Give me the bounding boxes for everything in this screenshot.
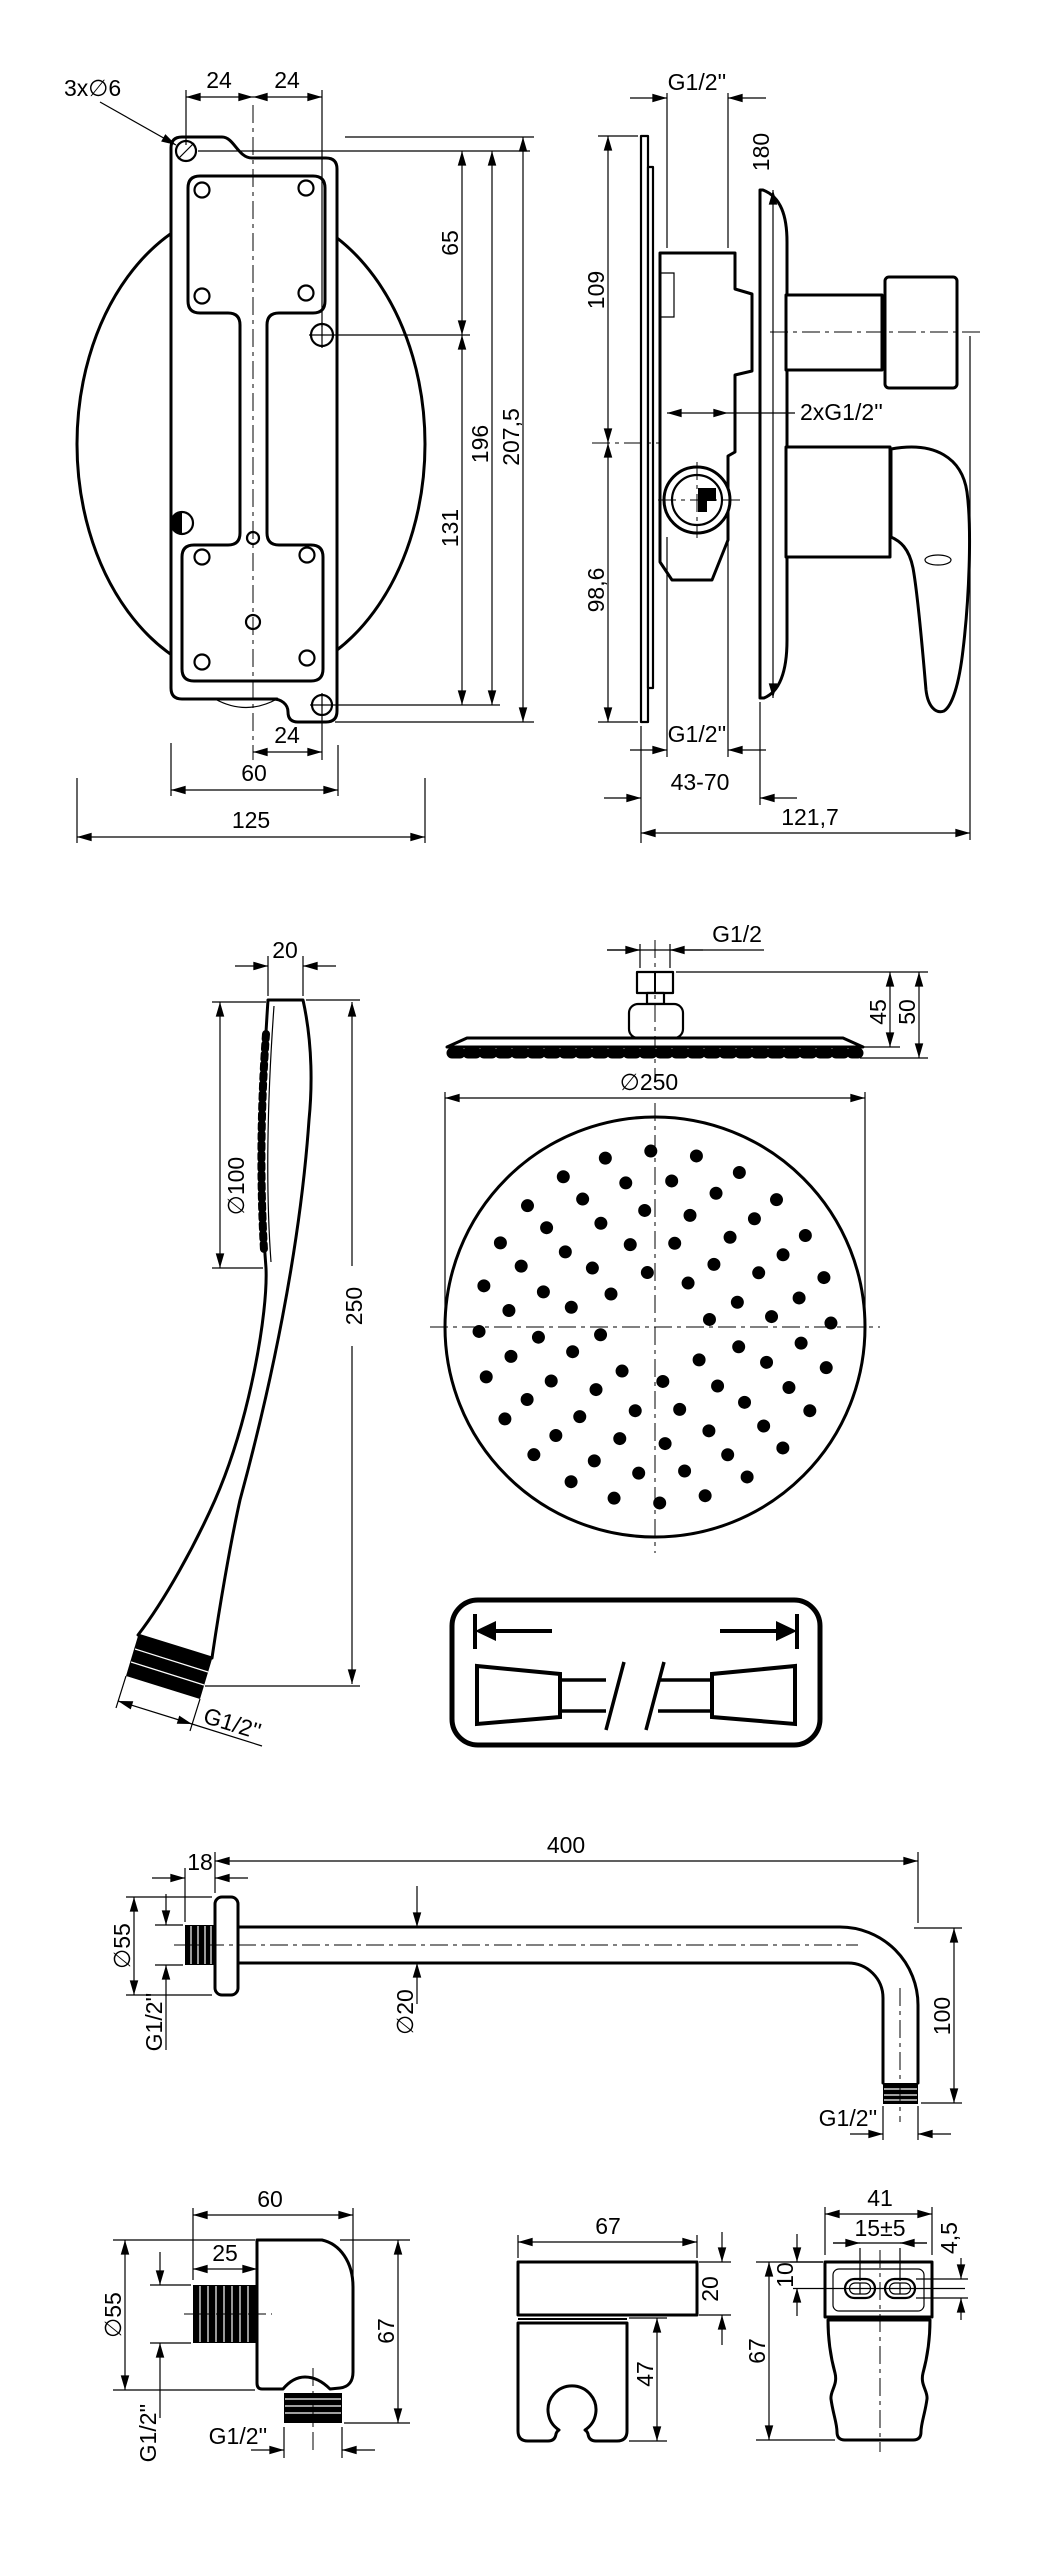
dim-label-outlet-flange-dia: ∅55 [100,2292,126,2338]
dim-label-back-width: 41 [867,2185,893,2211]
view-holder-side: 67 20 47 [518,2213,731,2441]
dim-label-wall-thread-length: 18 [187,1849,213,1875]
dim-label-top-thread: G1/2'' [668,69,727,95]
dim-label-length: 250 [341,1287,367,1325]
mixer-lower-sleeve [786,447,890,557]
dim-label-arm-length: 400 [547,1832,585,1858]
dim-label-hole-lower: 131 [437,509,463,547]
dim-label-end-thread: G1/2'' [819,2105,878,2131]
dim-label-total-depth: 121,7 [781,804,839,830]
dim-label-slot-height: 4,5 [936,2222,962,2254]
dim-label-head-thickness: 20 [272,937,298,963]
dim-label-slot-spacing: 15±5 [855,2215,906,2241]
dim-label-lower-height: 98,6 [583,568,609,613]
mixer-wall-plate-2 [648,167,653,688]
dim-label-wall-thread: G1/2'' [141,1993,167,2052]
view-wall-outlet: 60 25 ∅55 67 G1/2'' G1/2'' [100,2186,410,2462]
dim-label-height-total: 50 [894,999,920,1025]
arm-pipe-outer [238,1927,918,2083]
dim-label-holder-plate-thickness: 20 [697,2276,723,2302]
technical-drawing-sheet: 24 24 3x∅6 65 131 196 207,5 24 60 125 [0,0,1056,2560]
dim-label-pitch-right: 24 [274,67,300,93]
view-head-side: G1/2 45 50 [447,921,928,1078]
view-mounting-plate: 24 24 3x∅6 65 131 196 207,5 24 60 125 [64,67,534,843]
hand-shower-outline [138,1000,311,1658]
dim-label-holes: 3x∅6 [64,75,121,101]
dim-label-head-thread: G1/2 [712,921,762,947]
holder-fork [518,2323,627,2441]
dim-label-height-to-plate: 45 [865,999,891,1025]
dim-label-plate-width: 60 [241,760,267,786]
view-mixer-valve: G1/2'' 180 109 98,6 2xG1/2'' G1/2'' 43-7… [583,69,985,843]
dim-label-hole-upper: 65 [437,230,463,256]
dim-label-outlet-bottom-thread: G1/2'' [209,2423,268,2449]
holder-plate [518,2262,697,2315]
dim-label-bottom-pitch: 24 [274,722,300,748]
dim-label-flange-diameter: ∅55 [109,1923,135,1969]
dim-label-total-height: 207,5 [498,408,524,466]
hose-arrow-left [475,1621,496,1641]
view-hose [452,1600,820,1745]
arm-wall-flange [215,1897,238,1995]
dim-label-depth-range: 43-70 [671,769,730,795]
dim-label-side-threads: 2xG1/2'' [800,399,883,425]
view-holder-back: 41 15±5 4,5 10 67 [744,2185,968,2452]
dim-label-total-width: 125 [232,807,270,833]
holder-back-lower-body [828,2320,930,2440]
dim-label-slot-offset: 10 [772,2262,798,2288]
view-hand-shower: 20 ∅100 250 G1/2'' [116,937,367,1746]
shower-set-dimensional-drawing: 24 24 3x∅6 65 131 196 207,5 24 60 125 [0,0,1056,2560]
head-swivel-joint [629,1004,683,1038]
hose-tube [560,1662,712,1730]
hose-arrow-right [776,1621,797,1641]
dim-label-outlet-height: 67 [373,2318,399,2344]
dim-label-thread: G1/2'' [200,1702,264,1744]
dim-label-face-dia: ∅250 [620,1069,678,1095]
dim-label-outlet-thread-length: 25 [212,2240,238,2266]
dim-label-holes-span: 196 [467,425,493,463]
dim-label-holder-fork-height: 47 [632,2361,658,2387]
mixer-lever [891,447,970,712]
view-shower-arm: 400 18 ∅55 G1/2'' ∅20 100 G1/2'' [109,1832,962,2140]
dim-label-face-diameter: ∅100 [223,1157,249,1215]
dim-label-upper-height: 109 [583,271,609,309]
arm-pipe-inner [238,1963,883,2083]
dim-label-holder-width: 67 [595,2213,621,2239]
dim-label-outlet-width: 60 [257,2186,283,2212]
hose-connector-left [477,1666,560,1724]
dim-label-back-height: 67 [744,2338,770,2364]
dim-label-plate-diameter: 180 [748,133,774,171]
view-head-face: ∅250 [430,1069,880,1553]
hose-connector-right [712,1666,795,1724]
dim-label-outlet-side-thread: G1/2'' [135,2404,161,2463]
dim-label-bottom-thread: G1/2'' [668,721,727,747]
dim-label-pipe-diameter: ∅20 [392,1989,418,2035]
dim-label-drop: 100 [929,1997,955,2035]
dim-label-pitch-left: 24 [206,67,232,93]
